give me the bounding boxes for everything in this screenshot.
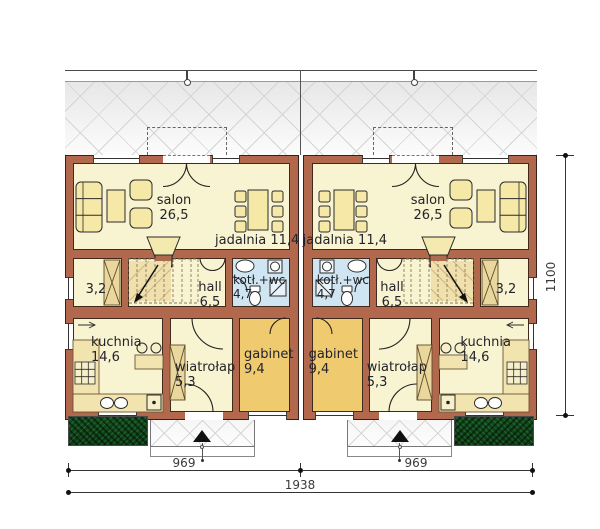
- label-storage: 3,2: [79, 282, 113, 297]
- label-kitchen: kuchnia14,6: [460, 335, 511, 366]
- label-salon: salon26,5: [401, 193, 455, 224]
- window: [248, 412, 287, 420]
- window: [362, 155, 390, 163]
- dimension-value-right: 969: [371, 456, 461, 470]
- dimension-dot: [563, 413, 568, 418]
- window: [65, 323, 73, 350]
- window: [93, 155, 140, 163]
- entrance-door-opening: [379, 412, 417, 420]
- label-vestibule: wiatrołap5,3: [175, 360, 235, 391]
- planter-green: [68, 416, 148, 446]
- window: [212, 155, 240, 163]
- window: [529, 277, 537, 300]
- roof-edge-line: [65, 70, 537, 71]
- terrace-door-opening: [163, 155, 210, 163]
- label-study: gabinet9,4: [309, 347, 358, 378]
- label-study: gabinet9,4: [244, 347, 293, 378]
- roof-window-outline: [373, 127, 453, 155]
- unit-left: salon26,5 jadalnia 11,4 3,2 hall6,5 kotł…: [65, 155, 298, 465]
- window: [315, 412, 354, 420]
- downspout-icon: [186, 70, 188, 81]
- dimension-dot: [563, 153, 568, 158]
- window: [462, 155, 509, 163]
- label-hall: hall6,5: [191, 280, 229, 311]
- dimension-dot: [530, 468, 535, 473]
- terrace-door-opening: [392, 155, 439, 163]
- planter-green: [454, 416, 534, 446]
- label-kitchen: kuchnia14,6: [91, 335, 142, 366]
- label-storage: 3,2: [489, 282, 523, 297]
- dimension-dot: [530, 490, 535, 495]
- dimension-value-left: 969: [139, 456, 229, 470]
- label-jadalnia: jadalnia 11,4: [303, 233, 387, 248]
- label-salon: salon26,5: [147, 193, 201, 224]
- dimension-line-depth: [565, 155, 566, 415]
- floor-plan: salon26,5 jadalnia 11,4 3,2 hall6,5 kotł…: [0, 0, 600, 529]
- entrance-marker-dot: [200, 445, 204, 449]
- entrance-arrow-icon: [391, 430, 409, 442]
- label-hall: hall6,5: [373, 280, 411, 311]
- label-vestibule: wiatrołap5,3: [367, 360, 427, 391]
- dimension-dot: [66, 490, 71, 495]
- label-jadalnia: jadalnia 11,4: [215, 233, 299, 248]
- unit-right: salon26,5 jadalnia 11,4 3,2 hall6,5 kotł…: [304, 155, 537, 465]
- terrace-hatch: [65, 82, 537, 155]
- dimension-value-total: 1938: [255, 478, 345, 492]
- entrance-marker-dot: [398, 445, 402, 449]
- label-boiler-wc: kotł.+wc4,7: [317, 273, 369, 301]
- window: [529, 323, 537, 350]
- entrance-arrow-icon: [193, 430, 211, 442]
- downspout-icon: [413, 70, 415, 81]
- roof-window-outline: [147, 127, 227, 155]
- dimension-value-depth: 1100: [544, 250, 558, 304]
- roof-center-line: [300, 70, 301, 155]
- dimension-dot: [298, 468, 303, 473]
- dimension-dot: [66, 468, 71, 473]
- label-boiler-wc: kotł.+wc4,7: [233, 273, 285, 301]
- dimension-line-total: [68, 492, 533, 493]
- window: [65, 277, 73, 300]
- entrance-door-opening: [185, 412, 223, 420]
